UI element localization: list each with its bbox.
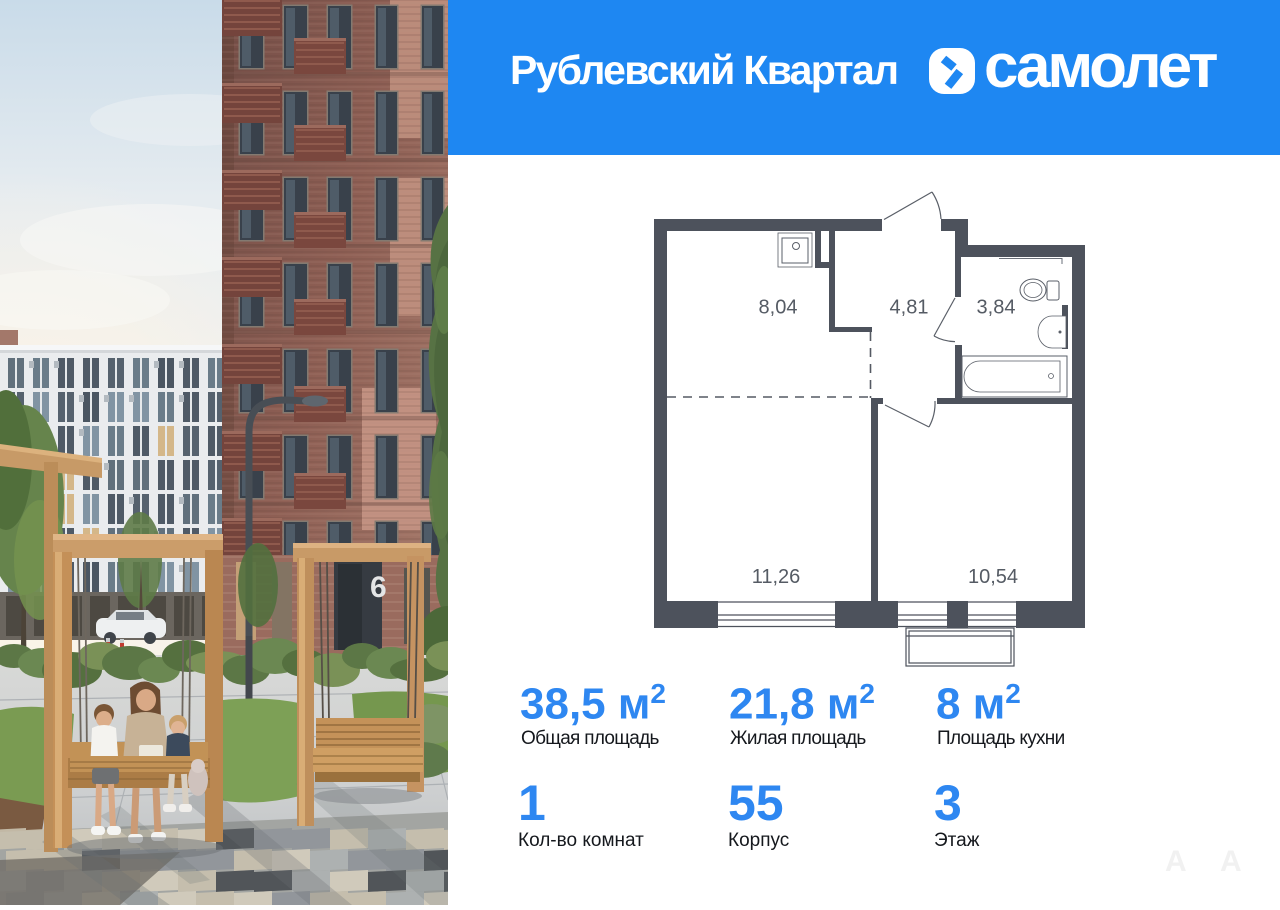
svg-text:6: 6 [370,571,387,604]
svg-text:8,04: 8,04 [759,297,798,319]
svg-text:3,84: 3,84 [977,297,1016,319]
svg-text:4,81: 4,81 [890,297,929,319]
svg-text:11,26: 11,26 [752,566,801,588]
svg-text:10,54: 10,54 [968,566,1018,588]
